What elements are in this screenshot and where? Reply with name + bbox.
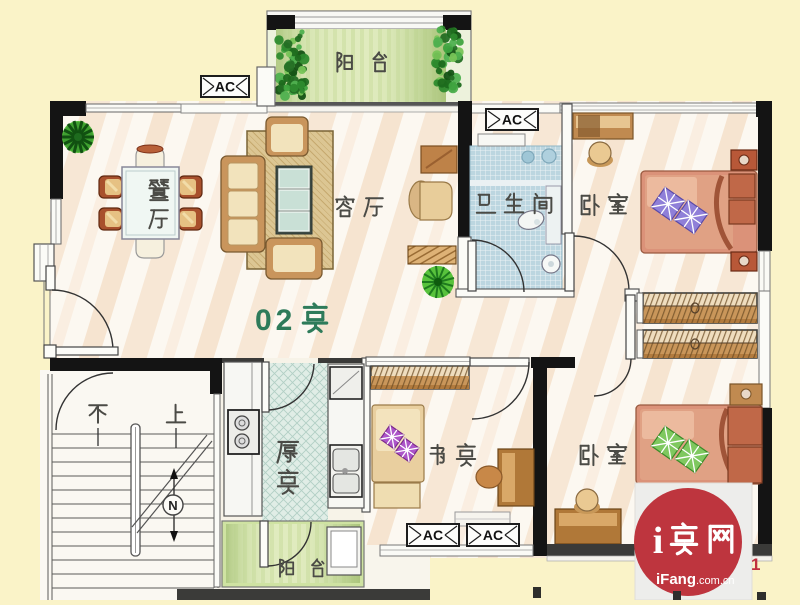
svg-text:1: 1 [751,555,760,574]
svg-text:AC: AC [502,112,522,128]
svg-text:AC: AC [423,527,443,543]
svg-text:N: N [168,498,177,513]
svg-text:AC: AC [215,79,235,95]
svg-text:AC: AC [483,527,503,543]
svg-text:02: 02 [255,304,296,337]
svg-text:i: i [653,520,664,562]
